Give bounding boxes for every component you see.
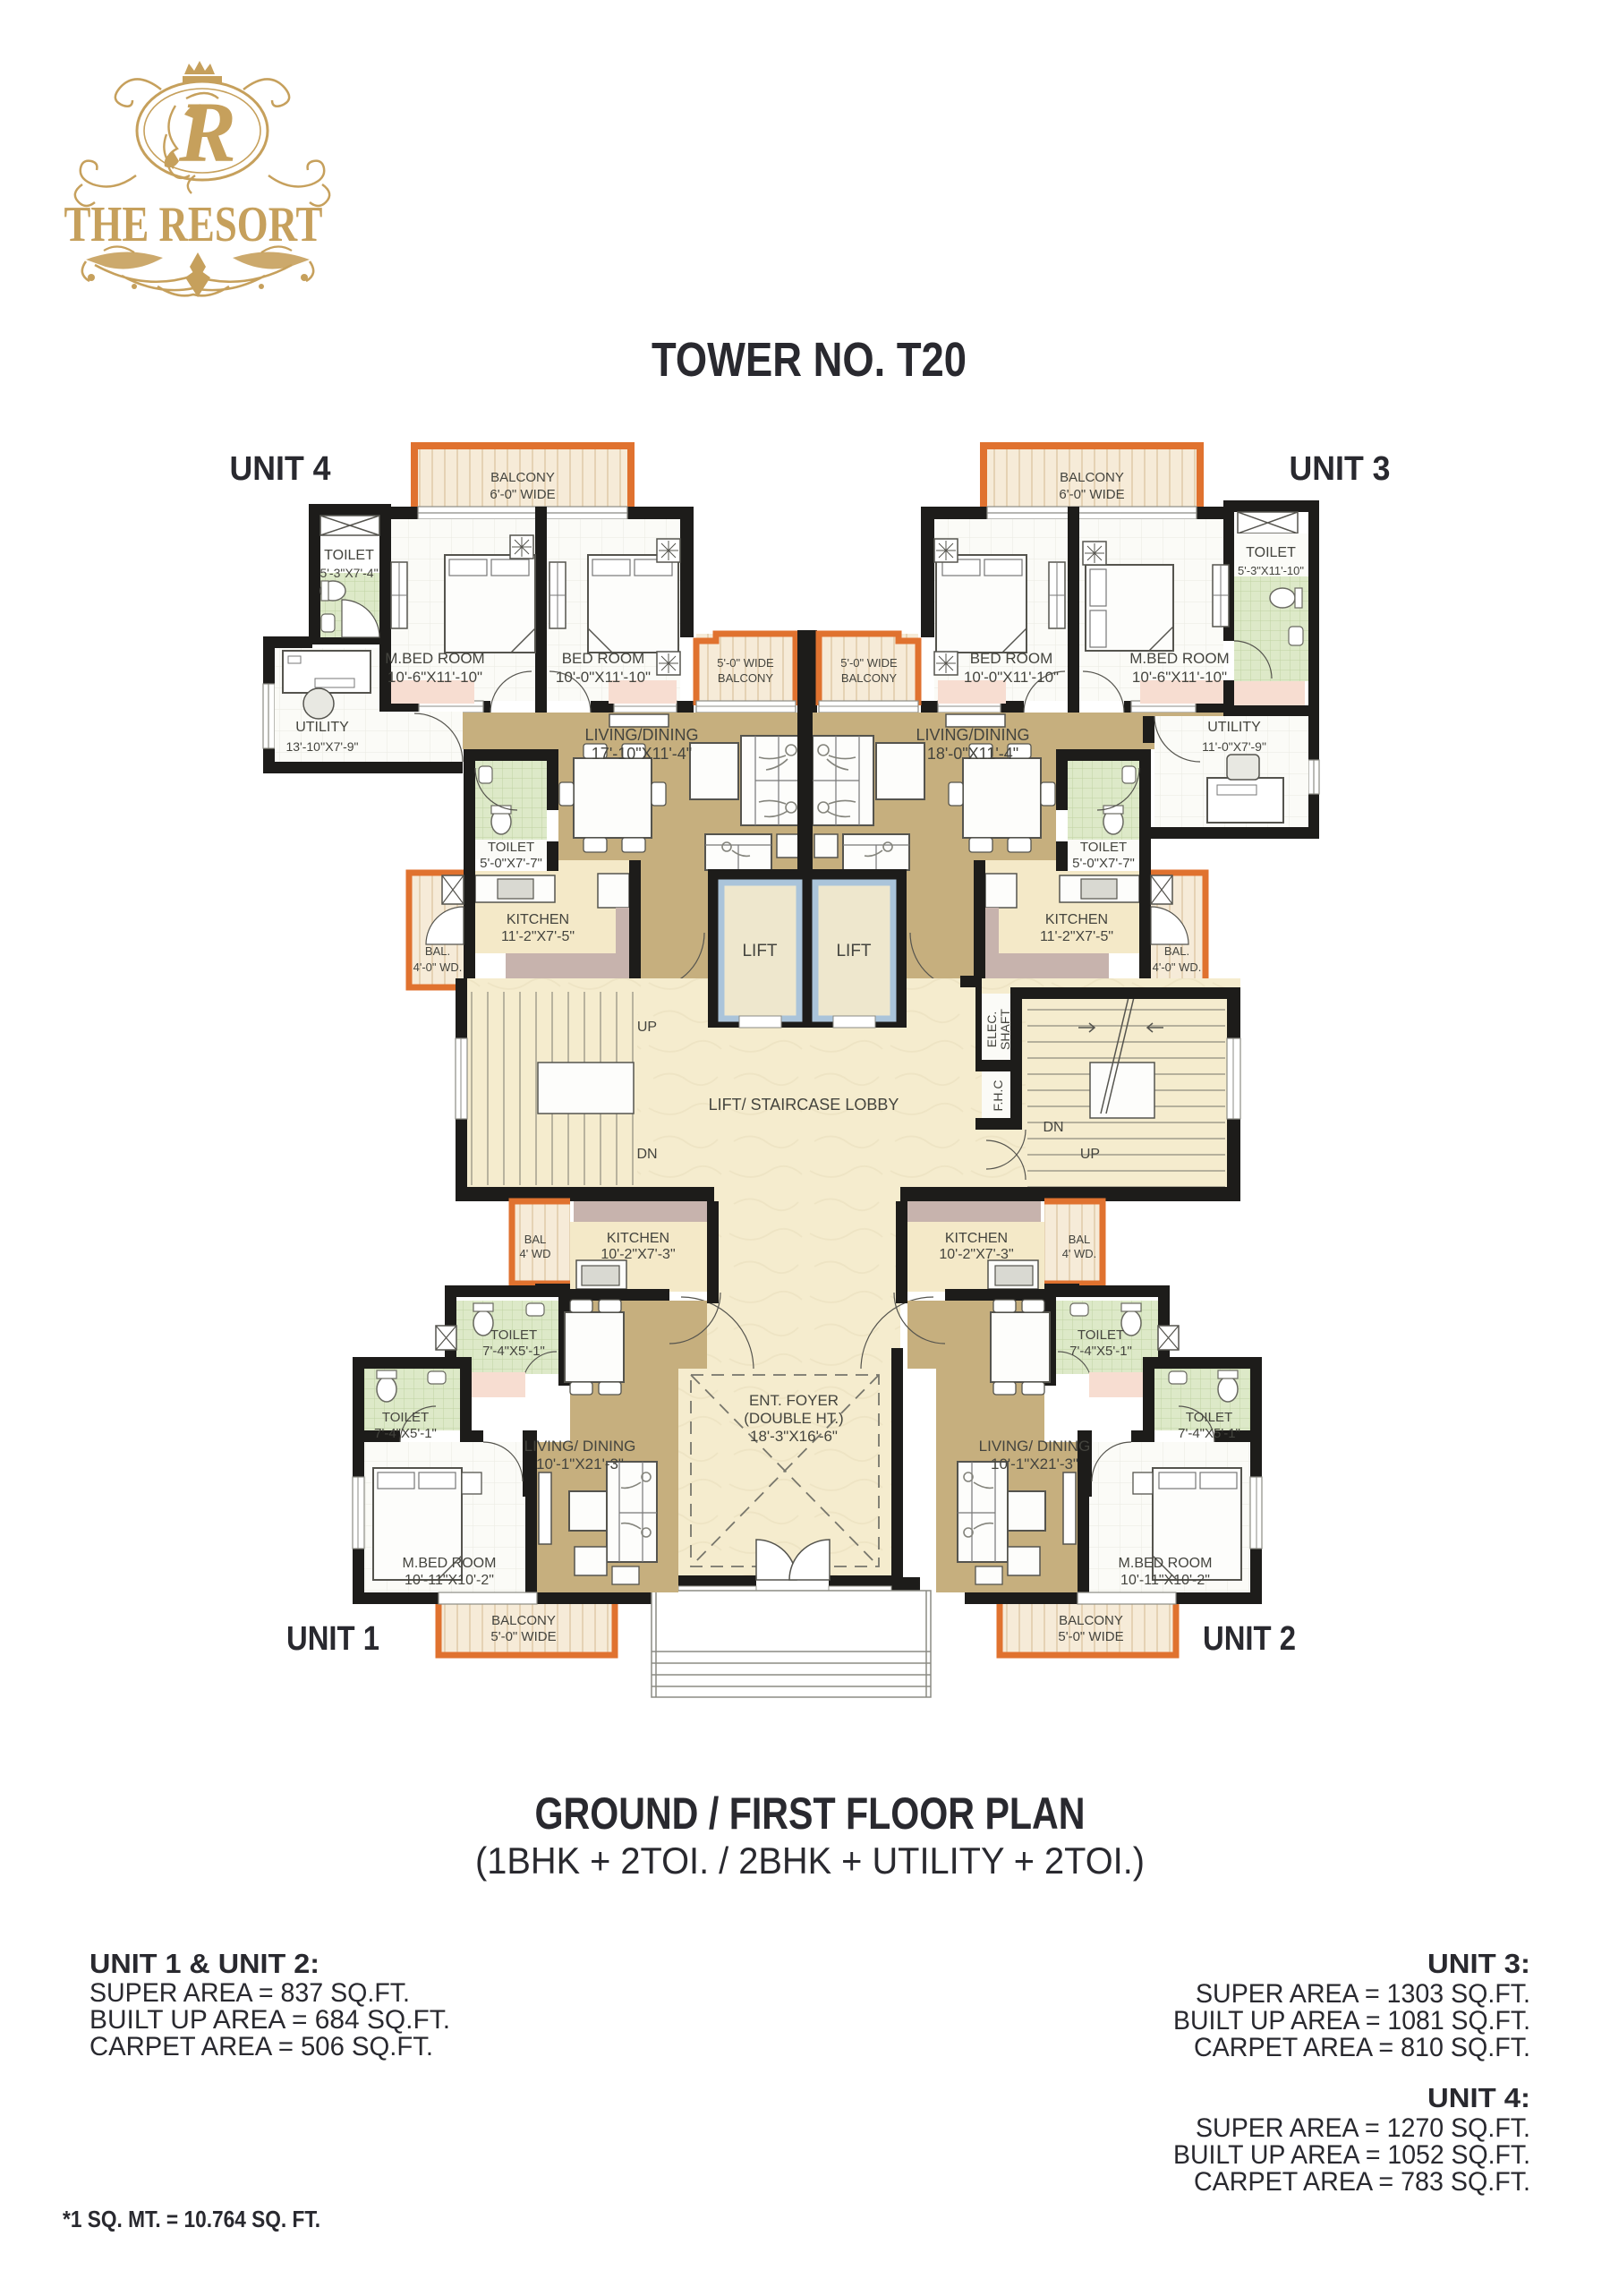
svg-text:KITCHEN: KITCHEN <box>607 1231 669 1246</box>
svg-text:UNIT 3:: UNIT 3: <box>1427 1948 1530 1979</box>
svg-text:UNIT 1: UNIT 1 <box>286 1620 379 1658</box>
svg-text:LIFT/ STAIRCASE LOBBY: LIFT/ STAIRCASE LOBBY <box>709 1096 899 1114</box>
svg-text:13'-10''X7'-9": 13'-10''X7'-9" <box>285 739 358 754</box>
svg-text:M.BED ROOM: M.BED ROOM <box>403 1556 497 1571</box>
svg-text:UNIT 4: UNIT 4 <box>230 450 331 488</box>
svg-text:18'-3"X16'-6": 18'-3"X16'-6" <box>750 1428 838 1445</box>
svg-text:TOWER NO. T20: TOWER NO. T20 <box>652 333 967 387</box>
svg-text:BUILT UP AREA = 1081 SQ.FT.: BUILT UP AREA = 1081 SQ.FT. <box>1173 2006 1530 2036</box>
svg-text:KITCHEN: KITCHEN <box>507 912 569 927</box>
svg-text:11'-2"X7'-5": 11'-2"X7'-5" <box>501 929 575 944</box>
svg-text:10'-11"X10'-2": 10'-11"X10'-2" <box>1120 1573 1210 1588</box>
svg-text:11'-0"X7'-9": 11'-0"X7'-9" <box>1202 739 1266 754</box>
svg-text:GROUND / FIRST FLOOR PLAN: GROUND / FIRST FLOOR PLAN <box>535 1788 1086 1839</box>
svg-text:10'-0"X11'-10": 10'-0"X11'-10" <box>964 669 1059 686</box>
svg-text:LIFT: LIFT <box>742 942 777 960</box>
svg-text:ENT. FOYER: ENT. FOYER <box>749 1392 839 1409</box>
svg-text:CARPET AREA = 783 SQ.FT.: CARPET AREA = 783 SQ.FT. <box>1194 2167 1530 2197</box>
svg-text:10'-11"X10'-2": 10'-11"X10'-2" <box>405 1573 494 1588</box>
svg-text:TOILET: TOILET <box>382 1410 429 1425</box>
svg-text:M.BED ROOM: M.BED ROOM <box>1129 650 1229 667</box>
svg-text:5'-0" WIDE: 5'-0" WIDE <box>490 1629 556 1644</box>
svg-text:10'-6"X11'-10": 10'-6"X11'-10" <box>1132 669 1227 686</box>
svg-text:THE RESORT: THE RESORT <box>64 197 323 252</box>
svg-text:TOILET: TOILET <box>1246 545 1296 560</box>
svg-text:M.BED ROOM: M.BED ROOM <box>385 650 484 667</box>
svg-text:CARPET AREA = 506 SQ.FT.: CARPET AREA = 506 SQ.FT. <box>89 2032 433 2061</box>
svg-text:BED ROOM: BED ROOM <box>970 650 1053 667</box>
svg-text:LIVING/DINING: LIVING/DINING <box>584 726 698 744</box>
svg-text:UNIT 1 & UNIT 2:: UNIT 1 & UNIT 2: <box>89 1948 319 1979</box>
svg-text:UNIT 2: UNIT 2 <box>1203 1620 1296 1658</box>
svg-text:BUILT UP AREA = 1052 SQ.FT.: BUILT UP AREA = 1052 SQ.FT. <box>1173 2140 1530 2170</box>
svg-text:LIVING/ DINING: LIVING/ DINING <box>524 1438 636 1455</box>
svg-text:M.BED ROOM: M.BED ROOM <box>1119 1556 1213 1571</box>
svg-text:11'-2"X7'-5": 11'-2"X7'-5" <box>1040 929 1113 944</box>
svg-text:5'-0"X7'-7": 5'-0"X7'-7" <box>480 856 542 871</box>
svg-text:5'-0" WIDE: 5'-0" WIDE <box>717 656 774 670</box>
svg-text:BALCONY: BALCONY <box>1059 1613 1123 1628</box>
svg-text:BAL.: BAL. <box>1164 944 1189 958</box>
svg-text:5'-3"X7'-4": 5'-3"X7'-4" <box>319 566 378 580</box>
svg-text:5'-0"X7'-7": 5'-0"X7'-7" <box>1072 856 1135 871</box>
svg-text:10'-1"X21'-3": 10'-1"X21'-3" <box>536 1455 624 1472</box>
svg-text:TOILET: TOILET <box>490 1327 537 1343</box>
svg-text:SUPER AREA = 837 SQ.FT.: SUPER AREA = 837 SQ.FT. <box>89 1978 410 2008</box>
svg-text:(1BHK + 2TOI. / 2BHK + UTILITY: (1BHK + 2TOI. / 2BHK + UTILITY + 2TOI.) <box>475 1839 1145 1882</box>
svg-text:CARPET AREA = 810 SQ.FT.: CARPET AREA = 810 SQ.FT. <box>1194 2033 1530 2062</box>
svg-text:TOILET: TOILET <box>1186 1410 1232 1425</box>
svg-text:4'-0" WD.: 4'-0" WD. <box>413 960 463 974</box>
svg-text:BALCONY: BALCONY <box>1060 470 1124 485</box>
svg-text:4' WD.: 4' WD. <box>1062 1247 1097 1260</box>
svg-text:BAL: BAL <box>524 1233 547 1246</box>
svg-text:BAL.: BAL. <box>425 944 450 958</box>
svg-text:18'-0"X11'-4": 18'-0"X11'-4" <box>927 745 1018 763</box>
svg-text:10'-2"X7'-3": 10'-2"X7'-3" <box>601 1247 675 1262</box>
svg-text:5'-3"X11'-10": 5'-3"X11'-10" <box>1238 564 1304 577</box>
svg-text:10'-2"X7'-3": 10'-2"X7'-3" <box>939 1247 1013 1262</box>
svg-text:BED ROOM: BED ROOM <box>562 650 645 667</box>
svg-text:(DOUBLE HT.): (DOUBLE HT.) <box>744 1410 843 1427</box>
svg-text:BALCONY: BALCONY <box>491 1613 556 1628</box>
svg-text:UNIT 4:: UNIT 4: <box>1427 2082 1530 2113</box>
svg-text:TOILET: TOILET <box>324 548 374 563</box>
svg-text:DN: DN <box>636 1147 657 1162</box>
svg-text:UNIT 3: UNIT 3 <box>1290 450 1391 488</box>
svg-text:5'-0" WIDE: 5'-0" WIDE <box>1058 1629 1123 1644</box>
svg-text:SHAFT: SHAFT <box>998 1009 1012 1050</box>
svg-text:10'-6"X11'-10": 10'-6"X11'-10" <box>388 669 482 686</box>
svg-text:BALCONY: BALCONY <box>841 671 897 685</box>
svg-text:7'-4"X5'-1": 7'-4"X5'-1" <box>374 1426 437 1441</box>
svg-text:6'-0" WIDE: 6'-0" WIDE <box>1059 487 1124 502</box>
svg-text:SUPER AREA = 1303 SQ.FT.: SUPER AREA = 1303 SQ.FT. <box>1196 1979 1530 2009</box>
svg-text:DN: DN <box>1043 1120 1063 1135</box>
svg-text:F.H.C: F.H.C <box>991 1080 1005 1112</box>
svg-text:10'-1"X21'-3": 10'-1"X21'-3" <box>991 1455 1078 1472</box>
svg-text:UTILITY: UTILITY <box>1207 720 1261 735</box>
svg-text:TOILET: TOILET <box>1078 1327 1124 1343</box>
svg-text:7'-4"X5'-1": 7'-4"X5'-1" <box>1178 1426 1240 1441</box>
svg-text:ELEC.: ELEC. <box>984 1011 999 1047</box>
svg-text:LIVING/ DINING: LIVING/ DINING <box>979 1438 1091 1455</box>
svg-text:TOILET: TOILET <box>488 840 534 855</box>
svg-text:7'-4"X5'-1": 7'-4"X5'-1" <box>1069 1344 1132 1359</box>
svg-text:UTILITY: UTILITY <box>295 720 349 735</box>
svg-text:5'-0" WIDE: 5'-0" WIDE <box>840 656 898 670</box>
svg-text:TOILET: TOILET <box>1080 840 1127 855</box>
svg-text:17'-10"X11'-4": 17'-10"X11'-4" <box>592 745 692 763</box>
svg-text:6'-0" WIDE: 6'-0" WIDE <box>490 487 555 502</box>
svg-text:4' WD: 4' WD <box>520 1247 551 1260</box>
svg-text:7'-4"X5'-1": 7'-4"X5'-1" <box>482 1344 545 1359</box>
svg-text:BALCONY: BALCONY <box>718 671 773 685</box>
svg-text:BAL: BAL <box>1069 1233 1091 1246</box>
svg-text:BALCONY: BALCONY <box>490 470 555 485</box>
svg-text:UP: UP <box>637 1020 657 1035</box>
svg-text:KITCHEN: KITCHEN <box>1045 912 1108 927</box>
svg-text:BUILT UP AREA = 684 SQ.FT.: BUILT UP AREA = 684 SQ.FT. <box>89 2005 450 2035</box>
svg-text:KITCHEN: KITCHEN <box>945 1231 1008 1246</box>
svg-text:LIVING/DINING: LIVING/DINING <box>916 726 1029 744</box>
svg-text:10'-0"X11'-10": 10'-0"X11'-10" <box>556 669 651 686</box>
svg-text:SUPER AREA = 1270 SQ.FT.: SUPER AREA = 1270 SQ.FT. <box>1196 2113 1530 2143</box>
svg-text:LIFT: LIFT <box>836 942 871 960</box>
svg-text:UP: UP <box>1080 1147 1100 1162</box>
svg-text:4'-0" WD.: 4'-0" WD. <box>1153 960 1202 974</box>
svg-text:*1 SQ. MT. = 10.764 SQ. FT.: *1 SQ. MT. = 10.764 SQ. FT. <box>63 2206 320 2232</box>
